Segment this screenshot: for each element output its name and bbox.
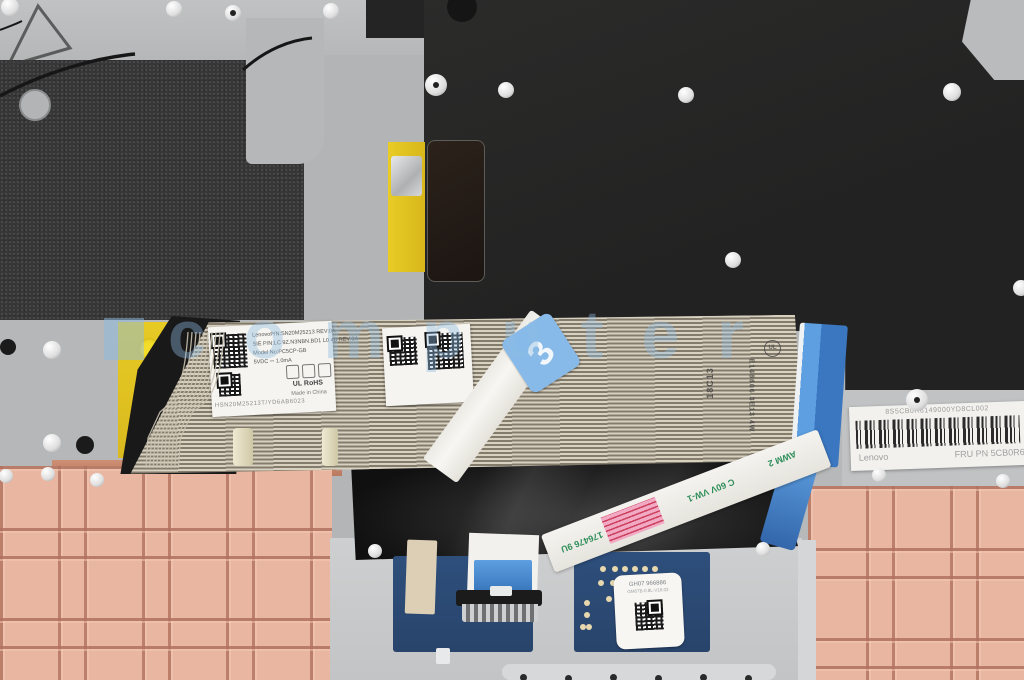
- brass-standoff: [322, 428, 338, 466]
- cable-print-2: C 60V VW-1: [686, 477, 736, 504]
- pink-molded-grid-left: [0, 466, 332, 680]
- screw-hole: [498, 82, 514, 98]
- adhesive-patch: [427, 140, 485, 282]
- laptop-palmrest-photo: GH07 966886 GM07B-0.8L-V16.02 18C13 E148…: [0, 0, 1024, 680]
- zif-connector-latch: [490, 586, 512, 596]
- fru-barcode-label: 8S5CB0R6149000YD8CL002 Lenovo FRU PN 5CB…: [849, 401, 1024, 471]
- screw-center: [433, 82, 439, 88]
- bracket-bottom-inset: [502, 664, 776, 680]
- watermark-text: computer: [168, 296, 782, 374]
- touchpad-label: GH07 966886 GM07B-0.8L-V16.02: [613, 572, 685, 649]
- screw-hole: [725, 252, 741, 268]
- screw-hole: [1013, 280, 1024, 296]
- screw-hole: [0, 339, 16, 355]
- label-serial: HSN20M25213T/YD6AB6023: [215, 398, 306, 409]
- black-plate-tongue: [366, 0, 428, 38]
- brass-standoff: [233, 428, 253, 466]
- bottom-screw-dots: [520, 674, 527, 680]
- screw-hole: [43, 341, 61, 359]
- screw-hole: [996, 474, 1010, 488]
- brand-text: Lenovo: [859, 452, 889, 463]
- screw-hole: [76, 436, 94, 454]
- screw-hole: [425, 74, 447, 96]
- bracket-edge-strip: [798, 540, 816, 680]
- rohs-mark: UL RoHS: [293, 379, 324, 388]
- screw-hole: [225, 5, 241, 21]
- screw-hole: [872, 468, 886, 482]
- screw-hole: [43, 434, 61, 452]
- plate-cutout: [246, 18, 324, 164]
- pink-molded-grid-right: [808, 486, 1024, 680]
- zif-connector-pins: [462, 604, 538, 622]
- screw-hole: [943, 83, 961, 101]
- screw-hole: [756, 542, 770, 556]
- bracket-tab: [436, 648, 450, 664]
- screw-center: [230, 10, 236, 16]
- screw-hole: [323, 3, 339, 19]
- cable-print-3: AWM 2: [767, 449, 798, 469]
- foil-sticker: [391, 156, 422, 196]
- qr-code-small: [218, 374, 241, 397]
- watermark-logo: [104, 318, 144, 360]
- screw-hole: [19, 89, 51, 121]
- barcode: [855, 415, 1020, 449]
- screw-hole: [906, 389, 928, 411]
- origin-text: Made in China: [291, 389, 327, 397]
- screw-hole: [678, 87, 694, 103]
- kapton-tape-strip: [405, 539, 438, 614]
- cable-print-1: 176476 9U: [560, 529, 605, 554]
- screw-hole: [41, 467, 55, 481]
- qr-code: [635, 601, 664, 630]
- test-pads: [600, 566, 606, 572]
- screw-center: [914, 397, 920, 403]
- screw-hole: [368, 544, 382, 558]
- screw-hole: [166, 1, 182, 17]
- screw-hole: [90, 473, 104, 487]
- fru-pn-text: FRU PN 5CB0R6: [954, 447, 1024, 459]
